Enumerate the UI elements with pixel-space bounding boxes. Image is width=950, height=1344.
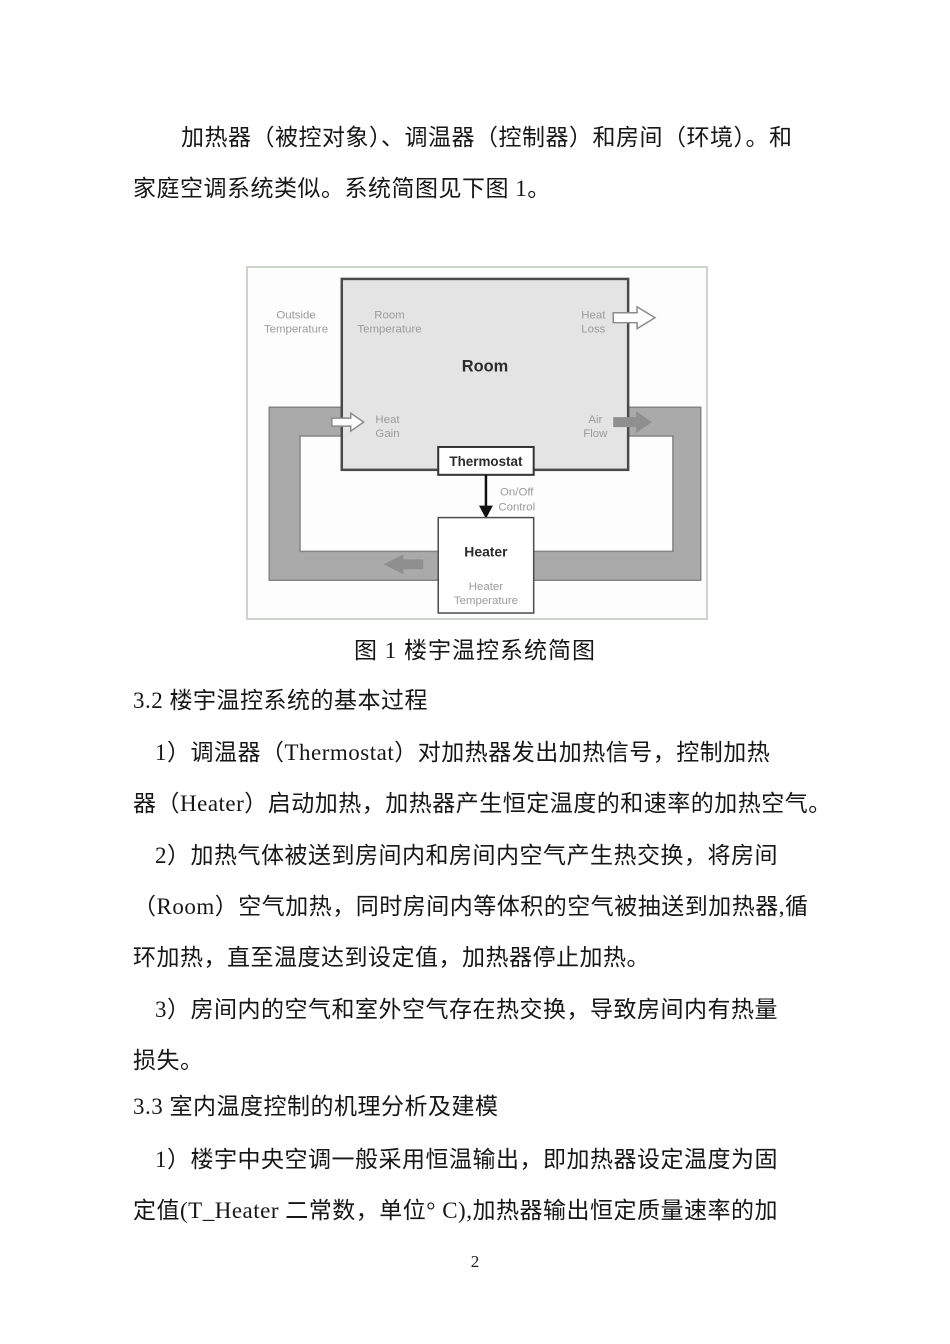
room-temperature-label: Room (374, 310, 404, 322)
paragraph-line: 2）加热气体被送到房间内和房间内空气产生热交换，将房间 (155, 842, 778, 870)
page-number: 2 (0, 1252, 950, 1272)
outside-temperature-label: Temperature (264, 324, 328, 336)
paragraph-line: 3）房间内的空气和室外空气存在热交换，导致房间内有热量 (155, 996, 778, 1024)
paragraph-line: 损失。 (133, 1047, 204, 1075)
figure-caption: 图 1 楼宇温控系统简图 (0, 637, 950, 665)
room-label: Room (462, 357, 508, 375)
room-temperature-label: Temperature (357, 324, 421, 336)
paragraph-line: （Room）空气加热，同时房间内等体积的空气被抽送到加热器,循 (133, 893, 808, 921)
paragraph-line: 家庭空调系统类似。系统简图见下图 1。 (133, 175, 551, 203)
figure-1: Outside Temperature Room Temperature Hea… (246, 266, 708, 620)
paragraph-line: 1）调温器（Thermostat）对加热器发出加热信号，控制加热 (155, 739, 770, 767)
paragraph-line: 1）楼宇中央空调一般采用恒温输出，即加热器设定温度为固 (155, 1146, 778, 1174)
temperature-control-diagram: Outside Temperature Room Temperature Hea… (248, 268, 706, 618)
on-off-control-label: Control (498, 502, 535, 514)
heat-loss-label: Loss (581, 324, 605, 336)
heat-loss-label: Heat (581, 310, 606, 322)
air-flow-label: Air (588, 414, 602, 426)
air-flow-label: Flow (583, 428, 608, 440)
on-off-control-label: On/Off (500, 487, 534, 499)
document-page: 加热器（被控对象）、调温器（控制器）和房间（环境）。和 家庭空调系统类似。系统简… (0, 0, 950, 1344)
heat-gain-label: Heat (375, 414, 400, 426)
section-heading-3-3: 3.3 室内温度控制的机理分析及建模 (133, 1093, 499, 1121)
paragraph-line: 环加热，直至温度达到设定值，加热器停止加热。 (133, 944, 650, 972)
heat-gain-label: Gain (375, 428, 399, 440)
paragraph-line: 加热器（被控对象）、调温器（控制器）和房间（环境）。和 (181, 124, 793, 152)
thermostat-label: Thermostat (449, 454, 523, 469)
heater-temperature-label: Heater (469, 581, 503, 593)
heater-temperature-label: Temperature (454, 595, 518, 607)
outside-temperature-label: Outside (276, 310, 315, 322)
section-heading-3-2: 3.2 楼宇温控系统的基本过程 (133, 687, 428, 715)
down-arrow-icon (479, 506, 493, 519)
heater-label: Heater (464, 543, 508, 559)
paragraph-line: 器（Heater）启动加热，加热器产生恒定温度的和速率的加热空气。 (133, 790, 832, 818)
paragraph-line: 定值(T_Heater 二常数，单位° C),加热器输出恒定质量速率的加 (133, 1197, 778, 1225)
